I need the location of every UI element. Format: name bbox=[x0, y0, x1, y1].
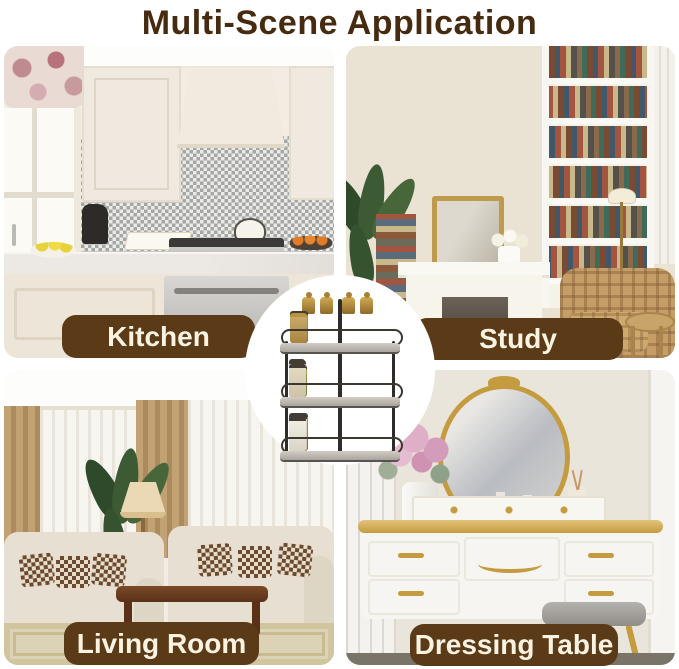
kitchen-faucet bbox=[12, 224, 16, 246]
vanity-gold-top bbox=[358, 520, 663, 533]
product-spotlight-circle bbox=[245, 275, 435, 465]
kitchen-upper-cabinet-right bbox=[289, 66, 334, 200]
kitchen-oven-handle bbox=[174, 288, 279, 294]
rack-shelf bbox=[280, 343, 400, 354]
stool-cushion bbox=[542, 602, 646, 626]
throw-pillow bbox=[18, 552, 55, 587]
scene-label-study: Study bbox=[413, 318, 623, 360]
page-title: Multi-Scene Application bbox=[0, 0, 679, 46]
coffee-table-top bbox=[116, 586, 268, 602]
kitchen-range-hood bbox=[177, 70, 285, 148]
vanity-gold-handle bbox=[398, 591, 424, 596]
vanity-gold-handle bbox=[398, 553, 424, 558]
kitchen-upper-cabinet-left bbox=[82, 66, 181, 202]
rack-shelf bbox=[280, 397, 400, 408]
vanity-drawer bbox=[368, 541, 460, 577]
decor-jar bbox=[360, 297, 373, 314]
diffuser-reed bbox=[577, 470, 582, 490]
dressing-room-wall-pillar bbox=[648, 370, 675, 665]
rack-shelf bbox=[280, 451, 400, 462]
throw-pillow bbox=[276, 542, 313, 577]
vanity-drawer bbox=[564, 541, 654, 577]
vanity-drawer bbox=[368, 579, 460, 615]
kitchen-range-grate bbox=[169, 238, 284, 247]
scene-label-living-room: Living Room bbox=[64, 622, 259, 665]
vanity-gold-handle bbox=[588, 591, 614, 596]
book-row bbox=[549, 86, 647, 124]
rotating-spice-rack-product-image bbox=[280, 295, 400, 449]
kitchen-orange-tray bbox=[290, 236, 332, 250]
multi-scene-application-collage: Multi-Scene Application bbox=[0, 0, 679, 669]
book-row bbox=[549, 46, 647, 84]
throw-pillow bbox=[197, 543, 233, 577]
decor-jar bbox=[320, 297, 333, 314]
book-row bbox=[549, 206, 647, 244]
scene-label-kitchen: Kitchen bbox=[62, 315, 255, 358]
study-wicker-side-table bbox=[621, 312, 675, 358]
study-floor-lamp-pole bbox=[620, 202, 623, 272]
kitchen-floral-valance bbox=[4, 46, 84, 108]
throw-pillow bbox=[91, 553, 128, 588]
side-table-leg bbox=[659, 326, 663, 358]
kitchen-lemon-bowl bbox=[30, 242, 76, 258]
throw-pillow bbox=[238, 546, 272, 578]
vanity-gold-handle bbox=[588, 553, 614, 558]
decor-jar bbox=[342, 297, 355, 314]
throw-pillow bbox=[56, 556, 90, 588]
side-table-leg bbox=[631, 326, 635, 358]
scene-label-dressing-table: Dressing Table bbox=[410, 624, 618, 666]
book-row bbox=[549, 126, 647, 164]
vanity-gold-ornament bbox=[478, 555, 542, 573]
kitchen-stand-mixer bbox=[82, 204, 108, 244]
living-room-curtain bbox=[4, 406, 40, 546]
